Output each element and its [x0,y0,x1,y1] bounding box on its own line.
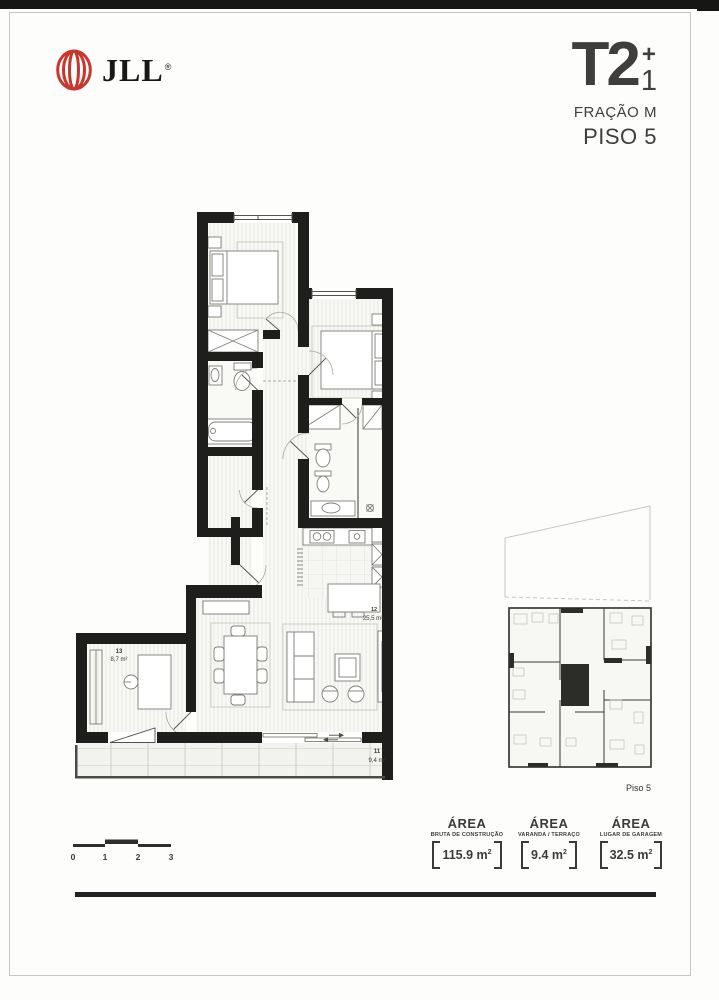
armchair [348,686,364,702]
scale-tick-2: 2 [136,852,141,862]
stair-core [561,664,589,706]
area-balcony: ÁREA VARANDA / TERRAÇO 9.4 m2 [511,816,587,869]
chair [214,669,224,683]
bracket-right [569,841,577,869]
area-gross: ÁREA BRUTA DE CONSTRUÇÃO 115.9 m2 [429,816,505,869]
armchair [322,686,338,702]
bracket-left [432,841,440,869]
toilet [234,363,251,370]
bedroom1-nightstand [208,237,221,248]
area-value: 9.4 m2 [531,848,567,862]
area-title: ÁREA [511,816,587,831]
area-title: ÁREA [593,816,669,831]
area-value: 32.5 m2 [610,848,653,862]
bedroom1-bed [210,251,278,304]
chair [214,647,224,661]
room12-number: 12 [371,607,377,613]
dining-table [224,636,257,694]
sofa [287,632,314,702]
scale-tick-3: 3 [169,852,174,862]
room11-number: 11 [374,749,381,755]
area-subtitle: BRUTA DE CONSTRUÇÃO [429,832,505,838]
scale-tick-1: 1 [103,852,108,862]
key-plan-caption: Piso 5 [626,783,651,793]
area-subtitle: LUGAR DE GARAGEM [593,832,669,838]
bedroom2-bed [321,331,386,389]
chair [231,626,245,636]
area-subtitle: VARANDA / TERRAÇO [511,832,587,838]
bottom-rule [75,892,656,897]
room13-area: 8,7 m² [110,657,127,663]
area-title: ÁREA [429,816,505,831]
chair [257,669,267,683]
area-value: 115.9 m2 [442,848,491,862]
bracket-right [494,841,502,869]
floor-plan: 13 8,7 m² 12 25,5 m² 11 9,4 m² [75,212,393,780]
room11-area: 9,4 m² [368,758,385,764]
room13-number: 13 [116,649,123,655]
chair [231,695,245,705]
key-plan: Piso 5 [505,506,651,793]
bedroom1-nightstand [208,306,221,317]
chair [257,647,267,661]
brochure-page: JLL® T2 + 1 FRAÇÃO M PISO 5 [0,0,719,1000]
scale-bar: 0 1 2 3 [71,840,174,863]
area-summary: ÁREA BRUTA DE CONSTRUÇÃO 115.9 m2 ÁREA V… [429,816,669,869]
bracket-left [521,841,529,869]
room12-area: 25,5 m² [363,616,383,622]
bidet [315,471,331,476]
bracket-right [654,841,662,869]
sideboard [203,601,249,614]
bracket-left [600,841,608,869]
area-garage: ÁREA LUGAR DE GARAGEM 32.5 m2 [593,816,669,869]
office-desk [138,655,171,709]
scale-tick-0: 0 [71,852,76,862]
